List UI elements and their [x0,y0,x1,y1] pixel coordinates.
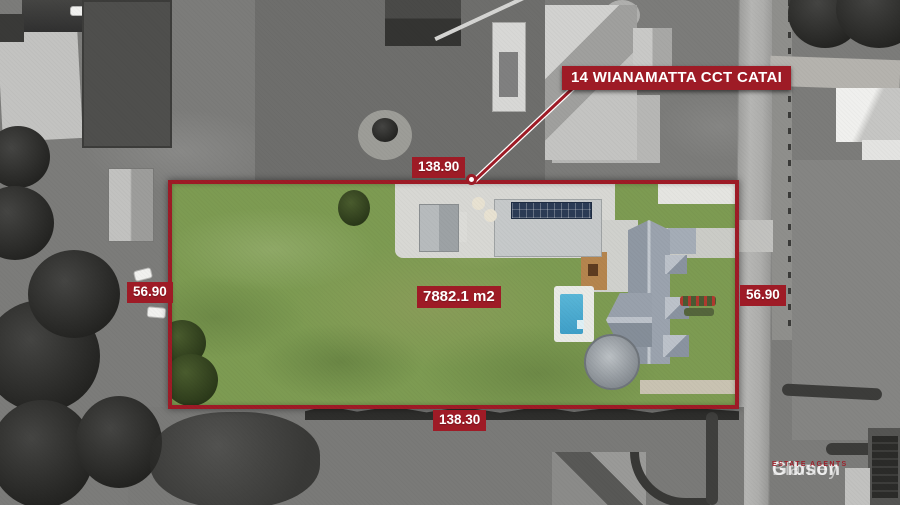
dimension-label-left: 56.90 [127,282,173,303]
dimension-label-right: 56.90 [740,285,786,306]
boundary-marker-dot [466,174,477,185]
area-label: 7882.1 m2 [417,286,501,308]
watermark-tagline: ESTATE AGENTS [772,461,848,468]
address-banner: 14 WIANAMATTA CCT CATAI [562,66,791,90]
dimension-label-top: 138.90 [412,157,465,178]
dimension-label-bottom: 138.30 [433,410,486,431]
aerial-photo: 14 WIANAMATTA CCT CATAI 138.90 7882.1 m2… [0,0,900,505]
